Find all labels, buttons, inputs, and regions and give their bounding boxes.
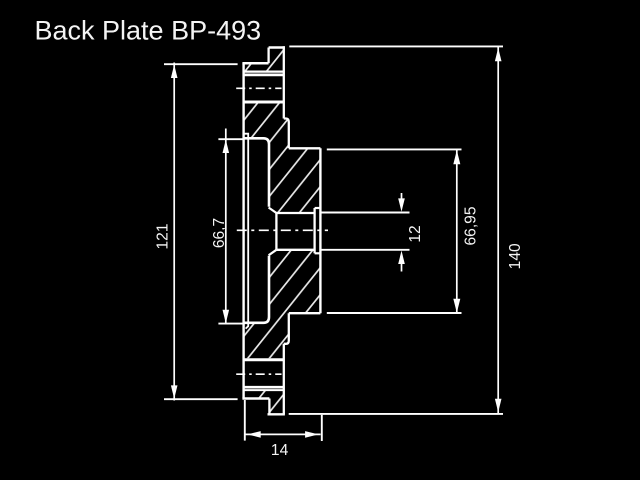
svg-text:121: 121 — [155, 223, 172, 249]
svg-text:66,95: 66,95 — [462, 206, 479, 245]
svg-text:14: 14 — [271, 442, 289, 459]
svg-text:12: 12 — [407, 225, 424, 242]
svg-text:66,7: 66,7 — [211, 218, 228, 248]
svg-text:Back Plate BP-493: Back Plate BP-493 — [35, 16, 262, 46]
svg-text:140: 140 — [507, 243, 524, 269]
